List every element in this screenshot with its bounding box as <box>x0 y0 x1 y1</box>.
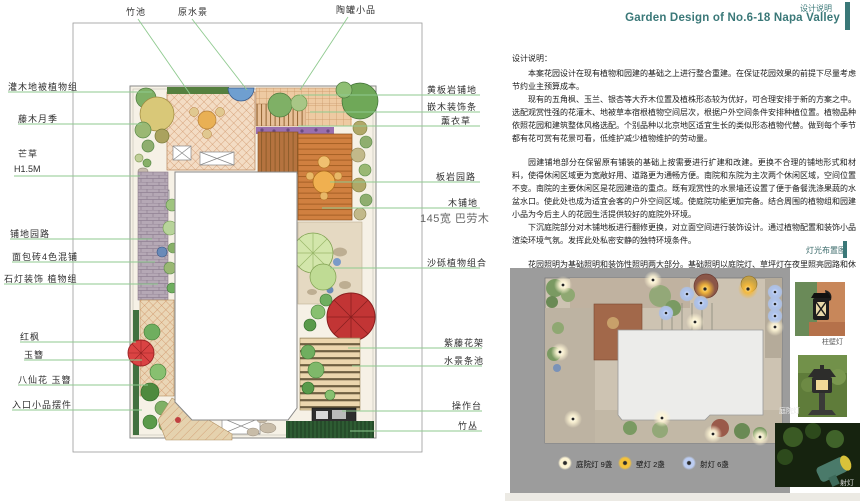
hedge-strip <box>167 87 229 94</box>
wall-lamp-photo <box>795 282 845 336</box>
design-description: 设计说明： 本案花园设计在现有植物和园建的基础之上进行整合重建。在保证花园效果的… <box>512 52 856 297</box>
plan-label: 八仙花 玉簪 <box>18 373 72 386</box>
plan-label: 黄板岩铺地 <box>427 83 477 96</box>
courtyard-lamp-photo-label: 庭院灯 <box>779 406 800 416</box>
lighting-accent-bar <box>843 241 847 258</box>
plan-label: 板岩园路 <box>436 170 476 183</box>
legend-wall-lamp-icon <box>618 456 632 470</box>
plan-label: 铺地园路 <box>10 227 50 240</box>
description-paragraph: 下沉庭院部分对木铺地板进行翻修更换，对立面空间进行装饰设计。通过植物配置和装饰小… <box>512 221 856 247</box>
lighting-plan-panel: 庭院灯 9盏 壁灯 2盏 射灯 6盏 <box>510 268 790 493</box>
legend-courtyard-lamp: 庭院灯 9盏 <box>576 459 612 470</box>
plan-label: 玉簪 <box>24 348 44 361</box>
description-paragraph: 园建铺地部分在保留原有铺装的基础上按需要进行扩建和改建。更换不合理的铺地形式和材… <box>512 156 856 221</box>
description-paragraph: 本案花园设计在现有植物和园建的基础之上进行整合重建。在保证花园效果的前提下尽量考… <box>512 67 856 93</box>
bottom-strip <box>505 493 860 501</box>
plan-label: 操作台 <box>452 399 482 412</box>
legend-spot-lamp: 射灯 6盏 <box>700 459 729 470</box>
plan-label: 145宽 巴劳木 <box>420 210 489 226</box>
description-heading: 设计说明： <box>512 52 856 65</box>
plan-label: 紫藤花架 <box>444 336 484 349</box>
dark-shrub-strip <box>133 310 139 435</box>
wall-lamp-photo-label: 柱壁灯 <box>822 337 843 347</box>
legend-wall-lamp: 壁灯 2盏 <box>636 459 665 470</box>
courtyard-lamp-photo <box>798 355 847 417</box>
counter-unit <box>312 408 356 423</box>
lighting-section-label: 灯光布置图 <box>806 245 846 256</box>
legend-courtyard-lamp-icon <box>558 456 572 470</box>
spot-lamp-photo-label: 射灯 <box>840 478 854 488</box>
plan-label: 面包砖4色混铺 <box>12 250 78 263</box>
plan-label: 石灯装饰 植物组 <box>4 272 78 285</box>
plan-label: 红枫 <box>20 330 40 343</box>
plan-label: 灌木地被植物组 <box>8 80 78 93</box>
plan-label: 沙砾植物组合 <box>427 256 487 269</box>
plan-label: 陶罐小品 <box>336 3 376 16</box>
house-footprint <box>175 172 297 420</box>
red-umbrella-tree <box>327 293 375 341</box>
plan-label: 入口小品摆件 <box>12 398 72 411</box>
plan-label: 竹丛 <box>458 419 478 432</box>
page-title: Garden Design of No.6-18 Napa Valley <box>620 12 840 24</box>
legend-spot-lamp-icon <box>682 456 696 470</box>
wood-deck-main <box>298 134 352 220</box>
red-maple <box>128 340 154 366</box>
pergola <box>300 338 360 410</box>
plan-label: 薰衣草 <box>441 114 471 127</box>
plan-label: 嵌木装饰条 <box>427 100 477 113</box>
header-accent-bar <box>845 2 850 30</box>
bamboo-clump <box>286 421 374 438</box>
plan-label: 芒草 <box>18 147 38 160</box>
plan-label: 藤木月季 <box>18 112 58 125</box>
plan-label: 木铺地 <box>448 196 478 209</box>
description-paragraph: 现有的五角枫、玉兰、银杏等大乔木位置及植株形态较为优好，可合理安排于新的方案之中… <box>512 93 856 145</box>
garden-design-sheet: { "header": { "tag": "设计说明", "title": "G… <box>0 0 860 501</box>
plan-label: 原水景 <box>178 5 208 18</box>
plan-label: 竹池 <box>126 5 146 18</box>
brick-path <box>138 172 168 300</box>
plan-label: H1.5M <box>14 164 41 174</box>
wood-deck-small <box>258 132 298 174</box>
plan-label: 水景条池 <box>444 354 484 367</box>
